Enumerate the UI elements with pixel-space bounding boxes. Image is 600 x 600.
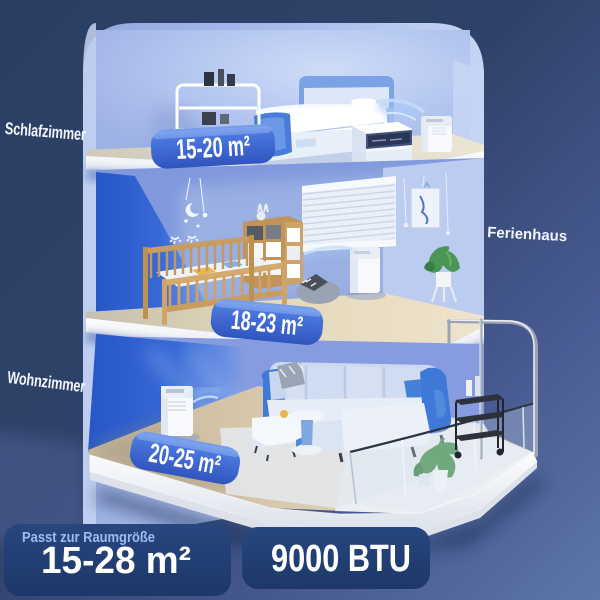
svg-text:15-20 m²: 15-20 m² (175, 130, 251, 165)
svg-text:9000 BTU: 9000 BTU (271, 538, 411, 580)
svg-text:15-28 m²: 15-28 m² (41, 540, 191, 582)
